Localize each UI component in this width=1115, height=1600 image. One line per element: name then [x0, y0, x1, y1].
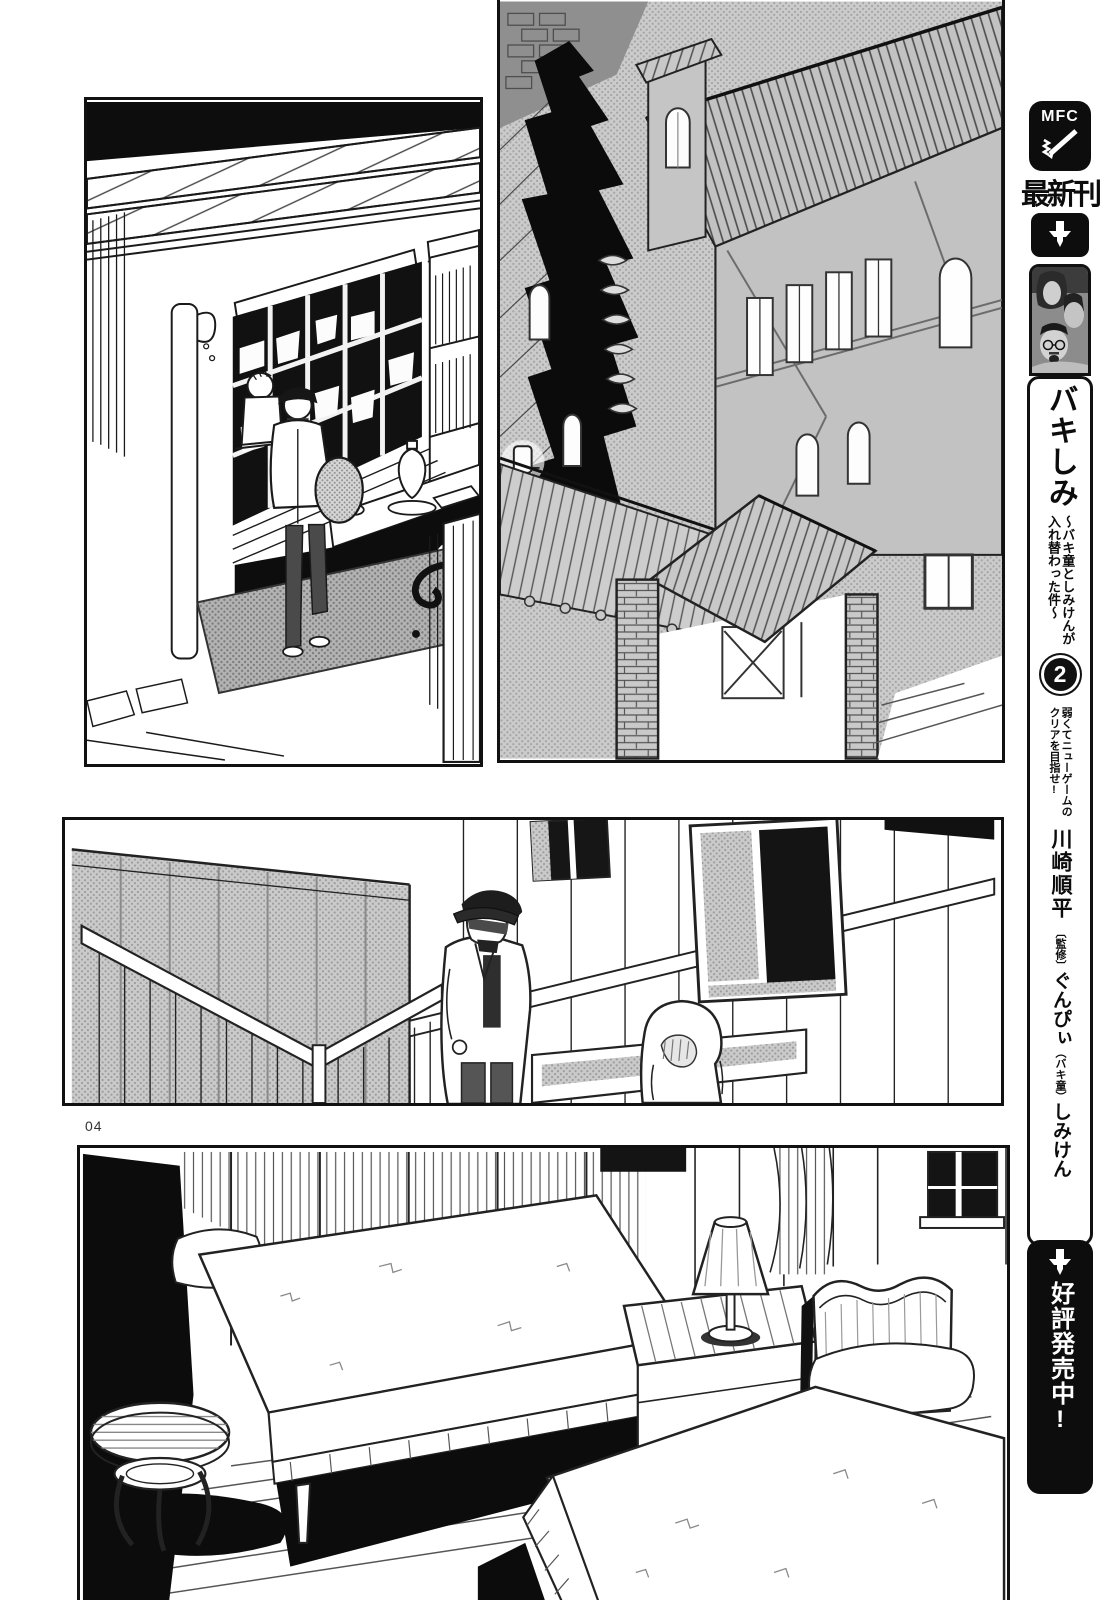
panel-bedroom-art — [80, 1148, 1007, 1600]
publisher-logo: MFC — [1029, 101, 1091, 171]
publisher-logo-text: MFC — [1041, 108, 1079, 126]
ad-text-capsule: バキしみ ～バキ童としみけんが 入れ替わった件～ 2 弱くてニューゲームの クリ… — [1027, 376, 1093, 1246]
promo-tagline-col-right: 弱くてニューゲームの — [1060, 707, 1072, 817]
page-number: 04 — [85, 1118, 103, 1134]
supervisor-note: （バキ童） — [1054, 1047, 1066, 1102]
window-right — [690, 820, 846, 1002]
promo-tagline: 弱くてニューゲームの クリアを目指せ! — [1048, 707, 1072, 817]
stone-floor — [87, 679, 284, 760]
volume-number-badge: 2 — [1044, 658, 1077, 691]
supervisor-label: 〔監修〕 — [1054, 927, 1066, 971]
panel-inn-bedroom — [77, 1145, 1010, 1600]
arched-window — [940, 258, 972, 347]
promo-title: バキしみ — [1044, 384, 1076, 508]
window-left — [531, 820, 610, 881]
shop-awning — [87, 102, 480, 260]
on-sale-badge: 好評発売中! — [1027, 1240, 1093, 1494]
dark-window — [920, 1152, 1004, 1228]
promo-tagline-col-left: クリアを目指せ! — [1048, 707, 1060, 817]
panel-night-buildings — [497, 0, 1005, 763]
panel-shop-counter-art — [87, 100, 480, 764]
down-arrow-icon — [1045, 1249, 1075, 1277]
co-author-name: しみけん — [1050, 1102, 1071, 1178]
hooded-figure — [641, 1001, 723, 1103]
shop-left-wall — [93, 212, 215, 658]
panel-night-buildings-art — [500, 0, 1002, 760]
promo-subtitle-col-left: 入れ替わった件～ — [1046, 515, 1060, 645]
volume-number: 2 — [1054, 661, 1067, 688]
on-sale-label: 好評発売中! — [1047, 1281, 1072, 1434]
promo-subtitle: ～バキ童としみけんが 入れ替わった件～ — [1046, 515, 1075, 645]
panel-shop-counter — [84, 97, 483, 767]
promo-photo — [1029, 264, 1091, 376]
latest-volume-label: 最新刊 — [1004, 171, 1115, 213]
down-arrow-badge — [1031, 213, 1089, 257]
promo-subtitle-col-right: ～バキ童としみけんが — [1060, 515, 1074, 645]
manga-page: 04 MFC 最新刊 — [0, 0, 1115, 1600]
down-arrow-icon — [1045, 221, 1075, 249]
author-name: 川崎順平 — [1049, 828, 1071, 920]
promo-photo-art — [1032, 267, 1088, 373]
shaded-wall — [72, 849, 410, 1103]
credits-line: 〔監修〕ぐんぴぃ（バキ童）しみけん — [1050, 927, 1070, 1178]
supervisor-name: ぐんぴぃ — [1050, 971, 1071, 1047]
panel-travelers-art — [65, 820, 1001, 1103]
pen-icon — [1040, 126, 1080, 162]
panel-travelers-walking — [62, 817, 1004, 1106]
